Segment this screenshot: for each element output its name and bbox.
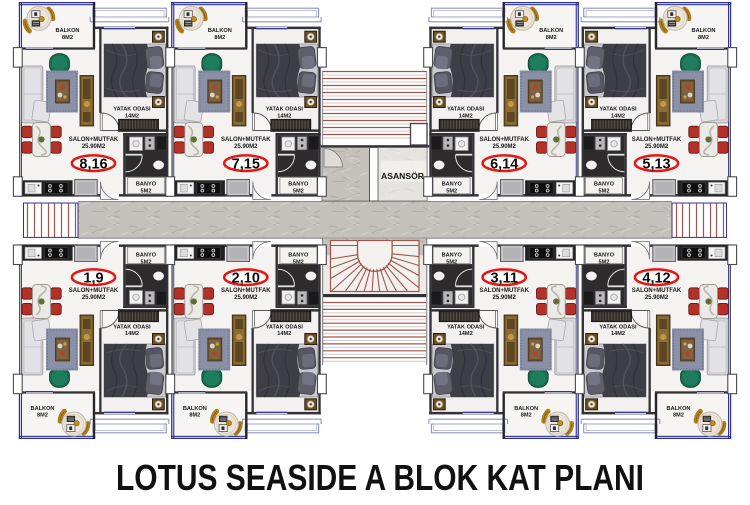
svg-text:5M2: 5M2 (141, 189, 152, 195)
svg-text:25.90M2: 25.90M2 (82, 295, 106, 301)
svg-text:YATAK ODASI: YATAK ODASI (447, 324, 485, 330)
svg-text:BALKON: BALKON (56, 28, 80, 34)
svg-text:8M2: 8M2 (189, 413, 200, 419)
svg-text:14M2: 14M2 (459, 113, 473, 119)
svg-text:YATAK ODASI: YATAK ODASI (599, 107, 637, 113)
svg-text:SALON+MUTFAK: SALON+MUTFAK (632, 137, 682, 143)
svg-text:SALON+MUTFAK: SALON+MUTFAK (479, 288, 529, 294)
svg-text:14M2: 14M2 (277, 113, 291, 119)
svg-text:4,12: 4,12 (642, 270, 670, 286)
svg-text:BANYO: BANYO (288, 182, 309, 188)
svg-text:YATAK ODASI: YATAK ODASI (447, 107, 485, 113)
svg-text:14M2: 14M2 (611, 113, 625, 119)
svg-text:5M2: 5M2 (446, 189, 457, 195)
svg-text:BALKON: BALKON (692, 28, 716, 34)
svg-text:BANYO: BANYO (136, 182, 157, 188)
svg-text:YATAK ODASI: YATAK ODASI (113, 107, 151, 113)
svg-text:14M2: 14M2 (611, 331, 625, 337)
svg-text:SALON+MUTFAK: SALON+MUTFAK (632, 288, 682, 294)
svg-text:6,14: 6,14 (490, 156, 518, 172)
svg-text:25.90M2: 25.90M2 (493, 144, 517, 150)
svg-text:SALON+MUTFAK: SALON+MUTFAK (221, 137, 271, 143)
svg-text:8M2: 8M2 (546, 35, 557, 41)
svg-text:SALON+MUTFAK: SALON+MUTFAK (69, 288, 119, 294)
svg-text:3,11: 3,11 (490, 270, 517, 286)
svg-text:5M2: 5M2 (599, 189, 610, 195)
svg-text:8M2: 8M2 (37, 413, 48, 419)
svg-text:7,15: 7,15 (232, 156, 260, 172)
svg-text:14M2: 14M2 (459, 331, 473, 337)
svg-text:YATAK ODASI: YATAK ODASI (266, 324, 304, 330)
svg-text:8M2: 8M2 (62, 35, 73, 41)
svg-text:8,16: 8,16 (79, 156, 107, 172)
svg-text:BALKON: BALKON (667, 406, 691, 412)
svg-text:BANYO: BANYO (442, 182, 463, 188)
svg-text:25.90M2: 25.90M2 (234, 295, 258, 301)
svg-text:BALKON: BALKON (208, 28, 232, 34)
svg-text:25.90M2: 25.90M2 (645, 295, 669, 301)
svg-text:YATAK ODASI: YATAK ODASI (113, 324, 151, 330)
svg-text:8M2: 8M2 (214, 35, 225, 41)
svg-text:14M2: 14M2 (125, 331, 139, 337)
svg-text:BANYO: BANYO (288, 253, 309, 259)
svg-text:1,9: 1,9 (83, 270, 103, 286)
svg-text:BALKON: BALKON (514, 406, 538, 412)
svg-text:5,13: 5,13 (642, 156, 670, 172)
svg-text:BANYO: BANYO (442, 253, 463, 259)
svg-text:5M2: 5M2 (141, 260, 152, 266)
svg-text:25.90M2: 25.90M2 (234, 144, 258, 150)
svg-text:BANYO: BANYO (136, 253, 157, 259)
svg-text:25.90M2: 25.90M2 (645, 144, 669, 150)
svg-text:2,10: 2,10 (232, 270, 260, 286)
svg-text:BANYO: BANYO (594, 182, 615, 188)
svg-text:5M2: 5M2 (293, 260, 304, 266)
svg-text:8M2: 8M2 (521, 413, 532, 419)
svg-text:8M2: 8M2 (698, 35, 709, 41)
svg-text:LOTUS SEASIDE A BLOK KAT PLANI: LOTUS SEASIDE A BLOK KAT PLANI (116, 457, 644, 498)
svg-text:8M2: 8M2 (673, 413, 684, 419)
svg-text:25.90M2: 25.90M2 (493, 295, 517, 301)
svg-text:14M2: 14M2 (125, 113, 139, 119)
svg-text:BANYO: BANYO (594, 253, 615, 259)
svg-text:YATAK ODASI: YATAK ODASI (599, 324, 637, 330)
svg-text:5M2: 5M2 (293, 189, 304, 195)
svg-text:BALKON: BALKON (539, 28, 563, 34)
svg-text:5M2: 5M2 (599, 260, 610, 266)
svg-text:SALON+MUTFAK: SALON+MUTFAK (221, 288, 271, 294)
svg-text:ASANSÖR: ASANSÖR (381, 171, 425, 181)
svg-text:SALON+MUTFAK: SALON+MUTFAK (69, 137, 119, 143)
svg-text:BALKON: BALKON (31, 406, 55, 412)
svg-text:5M2: 5M2 (446, 260, 457, 266)
svg-text:SALON+MUTFAK: SALON+MUTFAK (479, 137, 529, 143)
svg-text:25.90M2: 25.90M2 (82, 144, 106, 150)
svg-text:14M2: 14M2 (277, 331, 291, 337)
svg-text:YATAK ODASI: YATAK ODASI (266, 107, 304, 113)
svg-text:BALKON: BALKON (183, 406, 207, 412)
